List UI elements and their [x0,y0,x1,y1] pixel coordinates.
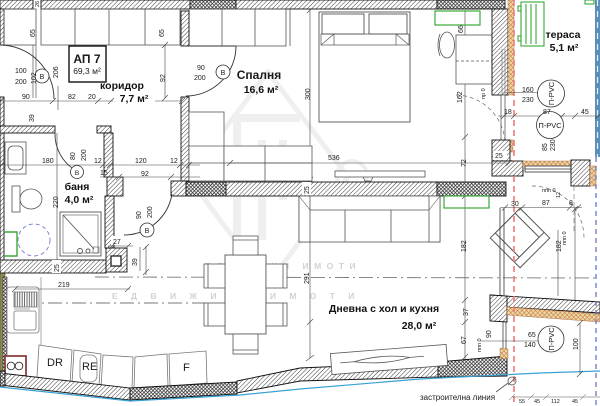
svg-text:25: 25 [54,264,61,272]
svg-text:80: 80 [70,152,77,160]
svg-text:69,3 м²: 69,3 м² [73,66,101,76]
svg-text:застроителна линия: застроителна линия [420,393,495,402]
svg-text:4,0 м²: 4,0 м² [65,194,94,206]
svg-text:АП 7: АП 7 [73,52,100,66]
svg-text:ппп 0: ппп 0 [477,338,483,352]
svg-text:230: 230 [550,139,557,151]
svg-text:RE: RE [82,361,97,373]
svg-text:220: 220 [53,196,60,208]
svg-text:F: F [183,362,190,374]
svg-text:45: 45 [534,399,540,405]
svg-text:65: 65 [30,29,37,37]
svg-text:90: 90 [22,94,30,101]
svg-text:45: 45 [581,109,589,116]
svg-text:ппп 0: ппп 0 [542,188,556,194]
svg-text:39: 39 [29,114,36,122]
svg-text:90: 90 [486,330,493,338]
svg-text:В: В [145,228,150,235]
svg-text:коридор: коридор [100,80,144,92]
svg-text:5,1 м²: 5,1 м² [550,42,579,54]
svg-text:28,0 м²: 28,0 м² [402,320,437,332]
svg-text:В: В [40,74,45,81]
svg-text:55: 55 [519,399,525,405]
svg-text:65: 65 [159,29,166,37]
svg-text:25: 25 [495,153,503,160]
svg-text:Спалня: Спалня [237,68,281,82]
svg-text:30: 30 [511,201,519,208]
svg-text:112: 112 [551,399,560,405]
svg-text:100: 100 [573,338,580,350]
svg-text:12: 12 [94,158,102,165]
svg-text:90: 90 [136,211,143,219]
svg-text:В: В [75,170,79,177]
svg-text:200: 200 [81,149,88,161]
svg-text:206: 206 [53,66,60,78]
svg-text:18: 18 [504,109,512,116]
svg-text:85: 85 [542,143,549,151]
svg-text:200: 200 [15,79,27,86]
svg-text:102: 102 [31,72,38,84]
svg-text:72: 72 [461,159,468,167]
svg-text:182: 182 [461,240,468,252]
svg-text:65: 65 [528,332,536,339]
svg-text:7,7 м²: 7,7 м² [120,93,149,105]
svg-text:120: 120 [135,158,147,165]
svg-text:92: 92 [141,171,149,178]
svg-text:25: 25 [304,186,311,194]
svg-text:В: В [221,70,226,77]
svg-text:45: 45 [572,399,578,405]
svg-text:20: 20 [88,94,96,101]
svg-text:12: 12 [556,192,562,198]
svg-text:90: 90 [197,65,205,72]
svg-text:200: 200 [194,75,206,82]
svg-text:П-PVC: П-PVC [547,327,556,351]
svg-text:тераса: тераса [545,29,580,41]
svg-text:87: 87 [543,109,551,116]
svg-text:26: 26 [35,1,41,7]
svg-text:П-PVC: П-PVC [538,121,562,130]
svg-text:пр 0: пр 0 [481,88,487,99]
svg-text:27: 27 [113,239,121,246]
svg-text:200: 200 [147,206,154,218]
svg-text:8: 8 [569,200,573,207]
svg-text:баня: баня [65,181,90,193]
svg-text:15: 15 [100,170,108,177]
svg-text:66: 66 [458,25,465,33]
svg-text:180: 180 [42,158,54,165]
svg-text:67: 67 [461,336,468,344]
svg-text:П-PVC: П-PVC [547,81,556,105]
svg-text:82: 82 [68,94,76,101]
svg-text:536: 536 [328,155,340,162]
svg-text:12: 12 [170,158,178,165]
svg-text:182: 182 [556,240,563,252]
svg-text:16,6 м²: 16,6 м² [244,84,279,96]
svg-text:Дневна с хол и кухня: Дневна с хол и кухня [329,303,439,315]
svg-text:100: 100 [15,68,27,75]
svg-text:230: 230 [522,97,534,104]
svg-text:140: 140 [524,342,536,349]
svg-text:162: 162 [457,91,464,103]
svg-text:87: 87 [542,200,550,207]
svg-text:300: 300 [305,88,312,100]
svg-text:39: 39 [132,258,139,266]
svg-text:92: 92 [160,74,167,82]
svg-text:DR: DR [47,357,63,369]
svg-text:160: 160 [522,87,534,94]
svg-text:219: 219 [58,282,70,289]
svg-text:37: 37 [463,308,470,316]
svg-text:291: 291 [304,272,311,284]
